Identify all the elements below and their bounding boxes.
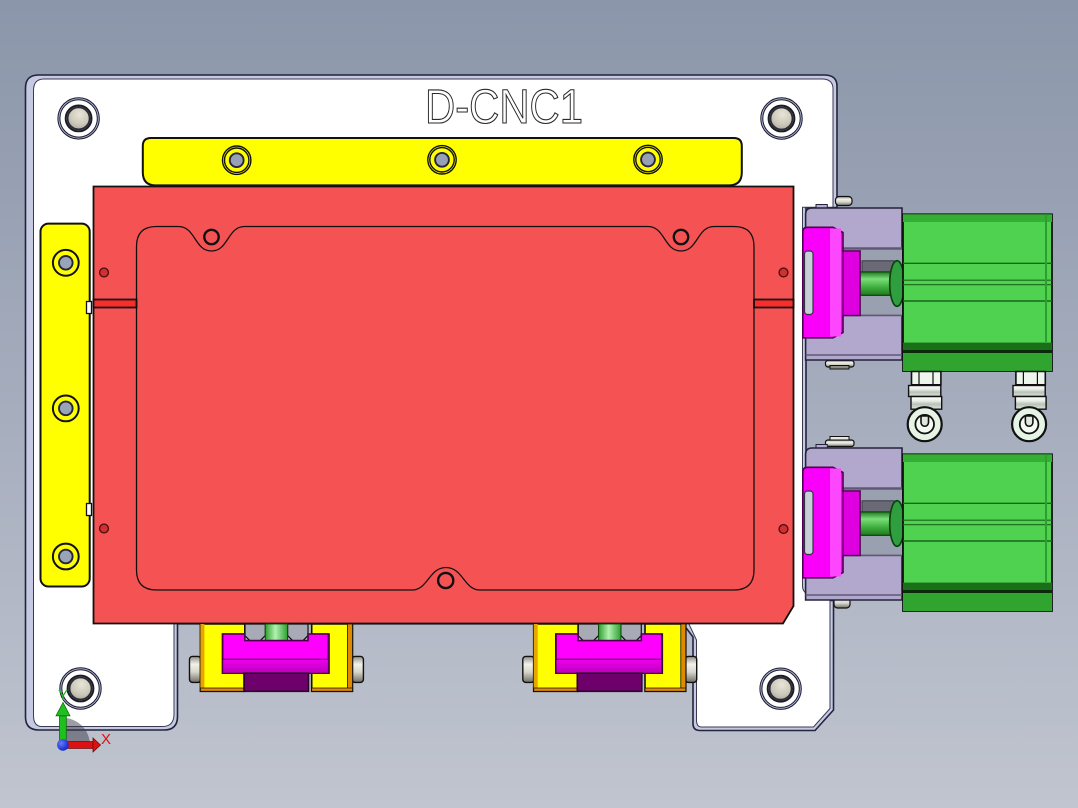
svg-text:Y: Y (58, 687, 68, 704)
svg-text:X: X (101, 731, 111, 748)
svg-text:D-CNC1: D-CNC1 (425, 81, 583, 134)
